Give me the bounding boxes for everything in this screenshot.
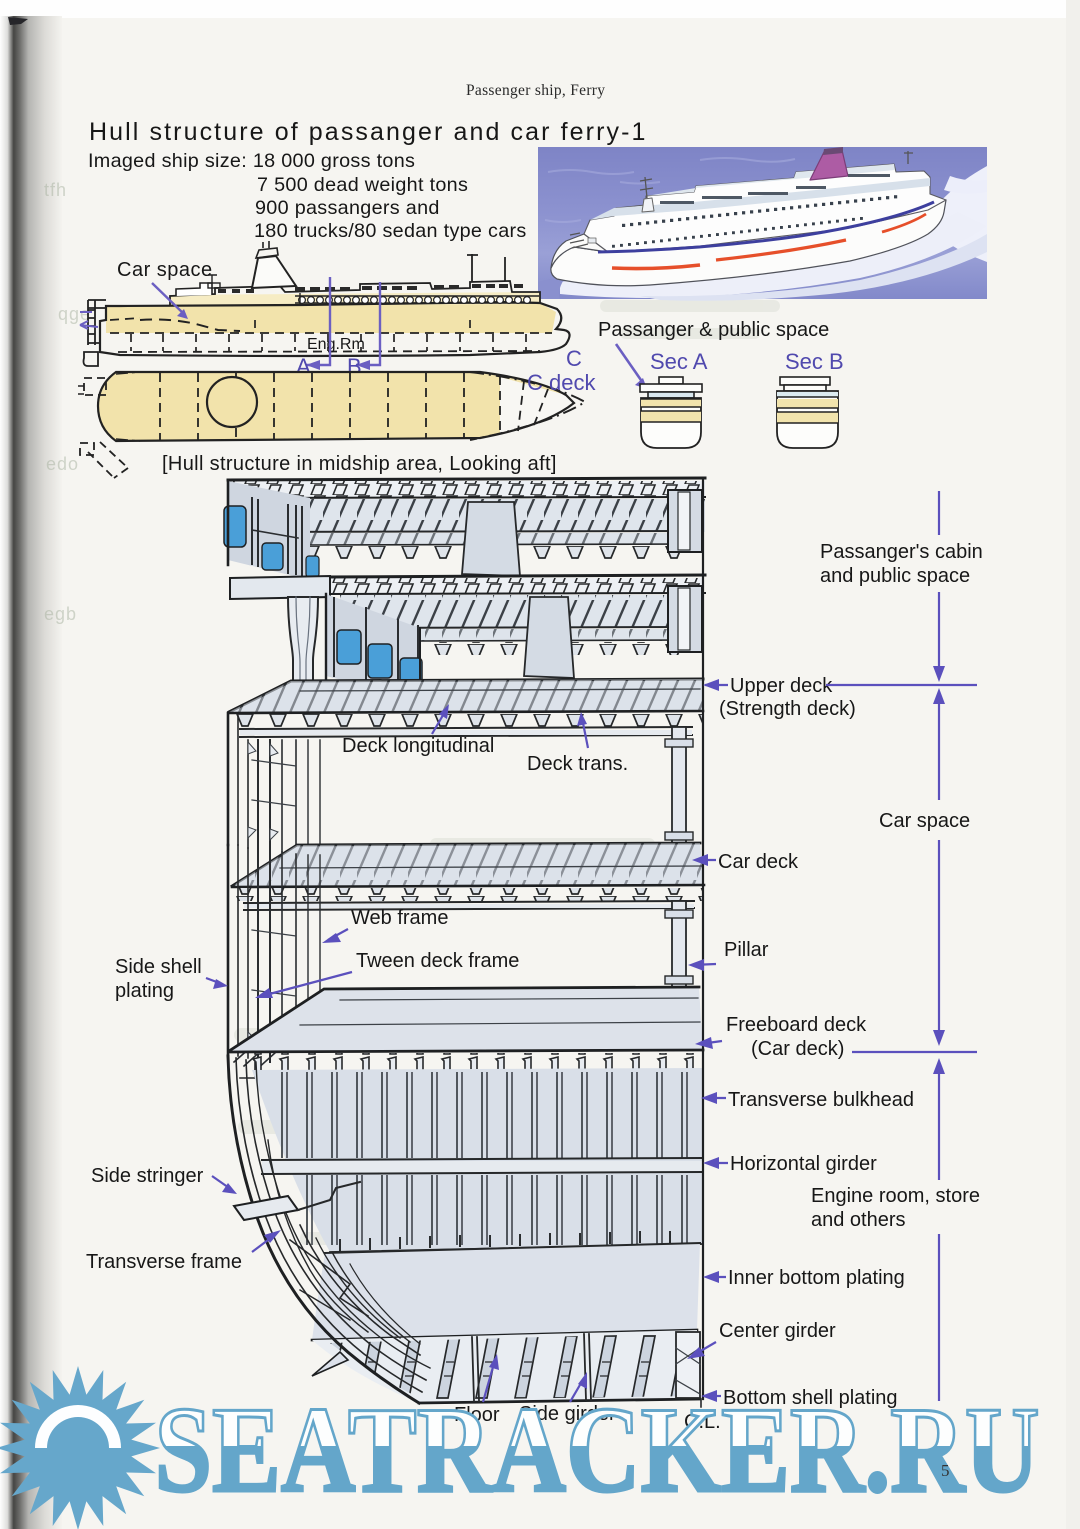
svg-text:Engine room, store: Engine room, store: [811, 1185, 980, 1207]
svg-text:Passenger ship, Ferry: Passenger ship, Ferry: [466, 82, 605, 99]
svg-text:[Hull structure in midship are: [Hull structure in midship area, Looking…: [162, 453, 557, 475]
svg-text:7 500 dead weight tons: 7 500 dead weight tons: [257, 174, 468, 196]
svg-text:and public space: and public space: [820, 565, 970, 587]
svg-text:SEATRACKER.RU: SEATRACKER.RU: [155, 1382, 1040, 1518]
svg-text:tfh: tfh: [44, 180, 67, 200]
svg-text:Car space: Car space: [879, 810, 970, 832]
svg-text:Pillar: Pillar: [724, 939, 769, 961]
svg-text:C deck: C deck: [527, 370, 596, 395]
svg-text:5: 5: [941, 1461, 950, 1480]
svg-text:Car deck: Car deck: [718, 851, 799, 873]
svg-text:egb: egb: [44, 604, 77, 624]
svg-text:Web frame: Web frame: [351, 907, 448, 929]
svg-text:Deck trans.: Deck trans.: [527, 753, 628, 775]
svg-text:Center girder: Center girder: [719, 1320, 836, 1342]
svg-text:Passanger's cabin: Passanger's cabin: [820, 541, 983, 563]
svg-text:edo: edo: [46, 454, 79, 474]
svg-text:Imaged ship size: 18 000 gross: Imaged ship size: 18 000 gross tons: [88, 150, 415, 172]
svg-text:(Strength deck): (Strength deck): [719, 698, 856, 720]
svg-text:Passanger & public space: Passanger & public space: [598, 319, 829, 341]
svg-text:Inner bottom plating: Inner bottom plating: [728, 1267, 905, 1289]
svg-text:Side shell: Side shell: [115, 956, 202, 978]
svg-text:plating: plating: [115, 980, 174, 1002]
svg-text:Sec A: Sec A: [650, 349, 708, 374]
svg-text:Freeboard deck: Freeboard deck: [726, 1014, 867, 1036]
svg-text:Transverse bulkhead: Transverse bulkhead: [728, 1089, 914, 1111]
svg-text:Upper deck: Upper deck: [730, 675, 833, 697]
svg-text:Sec B: Sec B: [785, 349, 844, 374]
svg-text:900 passangers and: 900 passangers and: [255, 197, 440, 219]
svg-text:(Car deck): (Car deck): [751, 1038, 844, 1060]
svg-text:180 trucks/80 sedan type cars: 180 trucks/80 sedan type cars: [254, 220, 527, 242]
svg-text:Transverse frame: Transverse frame: [86, 1251, 242, 1273]
svg-text:Deck longitudinal: Deck longitudinal: [342, 735, 494, 757]
svg-text:C: C: [566, 346, 582, 371]
svg-text:Eng.Rm: Eng.Rm: [307, 336, 365, 353]
svg-text:Car space: Car space: [117, 259, 213, 281]
svg-text:and others: and others: [811, 1209, 906, 1231]
svg-text:Tween deck frame: Tween deck frame: [356, 950, 519, 972]
svg-text:Horizontal girder: Horizontal girder: [730, 1153, 877, 1175]
svg-text:Hull structure of passanger an: Hull structure of passanger and car ferr…: [89, 118, 648, 146]
svg-text:Side stringer: Side stringer: [91, 1165, 204, 1187]
